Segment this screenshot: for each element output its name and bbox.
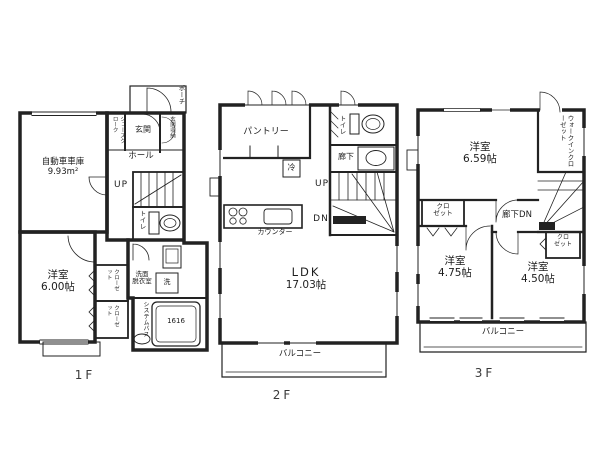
stairs-divider-bar — [539, 222, 555, 230]
stove-burner-icon — [229, 208, 237, 216]
toilet-tank-icon — [350, 114, 359, 134]
bedroom-a-name: 洋室 — [450, 141, 510, 153]
floor-tag-1f: 1F — [68, 369, 102, 383]
label-corridor-2f: 廊下 — [333, 152, 359, 161]
label-closet-a-1f: クローゼット — [103, 269, 119, 293]
label-up-2f: UP — [311, 179, 333, 189]
floorplan-sheet: ポーチ シューズクローク 玄関 玄関収納 ホール UP トイレ 自動車車庫 9.… — [0, 0, 600, 449]
label-corridor-dn-3f: 廊下DN — [494, 211, 540, 221]
label-balcony-2f: バルコニー — [270, 350, 330, 360]
closet-fold-door-icon — [540, 238, 546, 250]
toilet-bowl-icon — [362, 115, 384, 133]
bedroom-name: 洋室 — [28, 269, 88, 281]
stove-burner-icon — [239, 208, 247, 216]
label-hall: ホール — [118, 152, 164, 162]
basin-bowl-icon — [366, 151, 386, 166]
label-closet-b-1f: クローゼット — [103, 305, 119, 329]
bedroom-b-name: 洋室 — [425, 255, 485, 267]
bedroom-b-door-arc-icon — [466, 226, 490, 250]
ldk-area: 17.03帖 — [278, 279, 334, 291]
bedroom-c-name: 洋室 — [508, 261, 568, 273]
porch-door-arc-icon — [147, 88, 171, 112]
label-entrance-storage: 玄関収納 — [165, 116, 175, 152]
label-closet-b-3f: クロ ゼット — [547, 235, 579, 249]
stove-burner-icon — [240, 218, 246, 224]
label-washer: 洗 — [159, 278, 175, 286]
bedroom-door-arc-icon — [68, 236, 95, 262]
label-fridge: 冷 — [283, 163, 300, 172]
label-counter: カウンター — [250, 228, 300, 236]
floor-tag-3f: 3F — [468, 367, 502, 381]
stairs-2f-icon — [339, 172, 384, 200]
stove-burner-icon — [230, 218, 236, 224]
bedroom-c-area: 4.50帖 — [508, 273, 568, 285]
label-bedroom-b-3f: 洋室 4.75帖 — [425, 255, 485, 279]
stairs-divider-bar — [333, 216, 366, 224]
label-walk-in-closet: ウォークインクローゼット — [549, 115, 573, 170]
label-shoe-closet: シューズクローク — [109, 116, 125, 147]
label-bath-name: システムバス — [138, 301, 149, 347]
label-entrance: 玄関 — [127, 125, 159, 134]
label-pantry: パントリー — [238, 127, 294, 137]
label-closet-a-3f: クロ ゼット — [424, 203, 462, 218]
bedroom-a-area: 6.59帖 — [450, 153, 510, 165]
label-bath-size: 1616 — [159, 317, 193, 325]
toilet-bowl-icon — [160, 215, 180, 231]
label-bedroom-a-3f: 洋室 6.59帖 — [450, 141, 510, 165]
label-ldk: LDK 17.03帖 — [278, 266, 334, 291]
label-garage: 自動車車庫 9.93m² — [25, 158, 101, 178]
washroom-door-arc-icon — [133, 244, 149, 260]
closet-fold-door-icon — [427, 228, 457, 236]
label-washroom: 洗面 脱衣室 — [127, 271, 157, 286]
label-toilet-1f: トイレ — [136, 210, 146, 239]
label-bedroom-c-3f: 洋室 4.50帖 — [508, 261, 568, 285]
kitchen-counter-icon — [224, 205, 302, 228]
bedroom-c-door-arc-icon — [496, 232, 518, 254]
toilet-tank-icon — [149, 212, 159, 234]
garage-area: 9.93m² — [25, 168, 101, 178]
label-porch: ポーチ — [172, 85, 185, 112]
floor-tag-2f: 2F — [266, 389, 300, 403]
label-balcony-3f: バルコニー — [473, 328, 533, 338]
label-dn-2f: DN — [309, 214, 333, 224]
label-up-1f: UP — [110, 180, 132, 190]
bedroom-area: 6.00帖 — [28, 281, 88, 293]
label-toilet-2f: トイレ — [336, 115, 346, 144]
kitchen-sink-icon — [264, 209, 292, 224]
garage-door-arc-icon — [89, 177, 107, 195]
bedroom-b-area: 4.75帖 — [425, 267, 485, 279]
label-bedroom-1f: 洋室 6.00帖 — [28, 269, 88, 293]
ldk-name: LDK — [278, 266, 334, 279]
